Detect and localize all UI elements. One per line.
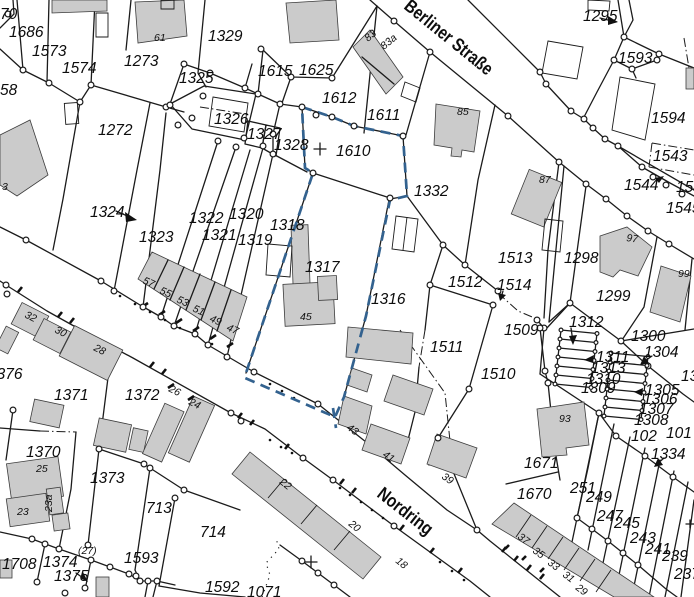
svg-text:93: 93: [559, 413, 571, 425]
svg-text:23a: 23a: [43, 494, 55, 513]
svg-text:1593: 1593: [618, 50, 653, 67]
svg-text:1708: 1708: [2, 556, 37, 573]
svg-text:1328: 1328: [274, 137, 309, 154]
svg-text:1511: 1511: [430, 339, 463, 356]
svg-text:1318: 1318: [270, 217, 305, 234]
svg-text:1325: 1325: [179, 70, 214, 87]
svg-text:1513: 1513: [498, 250, 533, 267]
svg-text:1312: 1312: [569, 314, 604, 331]
svg-text:1611: 1611: [367, 107, 400, 124]
svg-text:85: 85: [457, 106, 469, 118]
svg-text:1512: 1512: [448, 274, 483, 291]
svg-text:1272: 1272: [98, 122, 133, 139]
svg-text:1319: 1319: [238, 232, 273, 249]
svg-text:1321: 1321: [202, 227, 236, 244]
svg-text:1329: 1329: [208, 28, 243, 45]
svg-text:1334: 1334: [651, 446, 686, 463]
svg-text:714: 714: [200, 524, 226, 541]
svg-text:1615: 1615: [258, 63, 293, 80]
svg-text:1376: 1376: [0, 366, 23, 383]
svg-text:61: 61: [154, 32, 166, 44]
svg-text:239: 239: [661, 548, 688, 565]
svg-text:1323: 1323: [139, 229, 174, 246]
svg-text:1324: 1324: [90, 204, 125, 221]
svg-text:1671: 1671: [524, 455, 558, 472]
svg-text:1510: 1510: [481, 366, 516, 383]
svg-text:1612: 1612: [322, 90, 357, 107]
svg-text:1071: 1071: [247, 584, 281, 597]
svg-text:1332: 1332: [414, 183, 449, 200]
svg-text:713: 713: [146, 500, 172, 517]
svg-text:237: 237: [673, 566, 694, 583]
svg-text:1317: 1317: [305, 259, 341, 276]
svg-text:102: 102: [631, 428, 657, 445]
svg-text:1309: 1309: [581, 380, 616, 397]
svg-text:1295: 1295: [583, 8, 618, 25]
svg-text:3: 3: [2, 181, 8, 193]
svg-text:1545: 1545: [666, 200, 694, 217]
svg-text:1300: 1300: [631, 328, 666, 345]
svg-text:101: 101: [666, 425, 692, 442]
svg-text:99: 99: [678, 268, 690, 280]
svg-text:1610: 1610: [336, 143, 371, 160]
svg-text:1304: 1304: [644, 344, 679, 361]
svg-text:58: 58: [0, 82, 18, 99]
svg-text:1592: 1592: [205, 579, 240, 596]
svg-text:1670: 1670: [517, 486, 552, 503]
svg-text:1320: 1320: [229, 206, 264, 223]
svg-text:1326: 1326: [214, 111, 249, 128]
svg-text:1370: 1370: [26, 444, 61, 461]
svg-text:1316: 1316: [371, 291, 406, 308]
svg-text:23: 23: [16, 506, 29, 518]
svg-text:136: 136: [681, 368, 694, 385]
svg-text:1574: 1574: [62, 60, 97, 77]
svg-text:1514: 1514: [497, 277, 532, 294]
svg-text:1544: 1544: [624, 177, 659, 194]
svg-text:1298: 1298: [564, 250, 599, 267]
svg-text:87: 87: [539, 174, 552, 186]
svg-text:1594: 1594: [651, 110, 686, 127]
svg-text:1372: 1372: [125, 387, 160, 404]
svg-text:249: 249: [585, 489, 612, 506]
svg-text:1593: 1593: [124, 550, 159, 567]
svg-text:1686: 1686: [9, 24, 44, 41]
svg-text:1625: 1625: [299, 62, 334, 79]
svg-text:45: 45: [300, 311, 312, 323]
svg-text:1509: 1509: [504, 322, 539, 339]
svg-text:1273: 1273: [124, 53, 159, 70]
svg-text:1299: 1299: [596, 288, 631, 305]
svg-text:70: 70: [0, 6, 18, 23]
svg-text:1543: 1543: [653, 148, 688, 165]
svg-text:1322: 1322: [189, 210, 224, 227]
svg-text:(27): (27): [78, 545, 97, 557]
svg-text:25: 25: [35, 463, 48, 475]
svg-text:1371: 1371: [54, 387, 88, 404]
svg-text:154: 154: [676, 179, 694, 196]
svg-text:1375: 1375: [54, 568, 89, 585]
svg-text:1308: 1308: [634, 412, 669, 429]
svg-text:1373: 1373: [90, 470, 125, 487]
svg-text:1573: 1573: [32, 43, 67, 60]
